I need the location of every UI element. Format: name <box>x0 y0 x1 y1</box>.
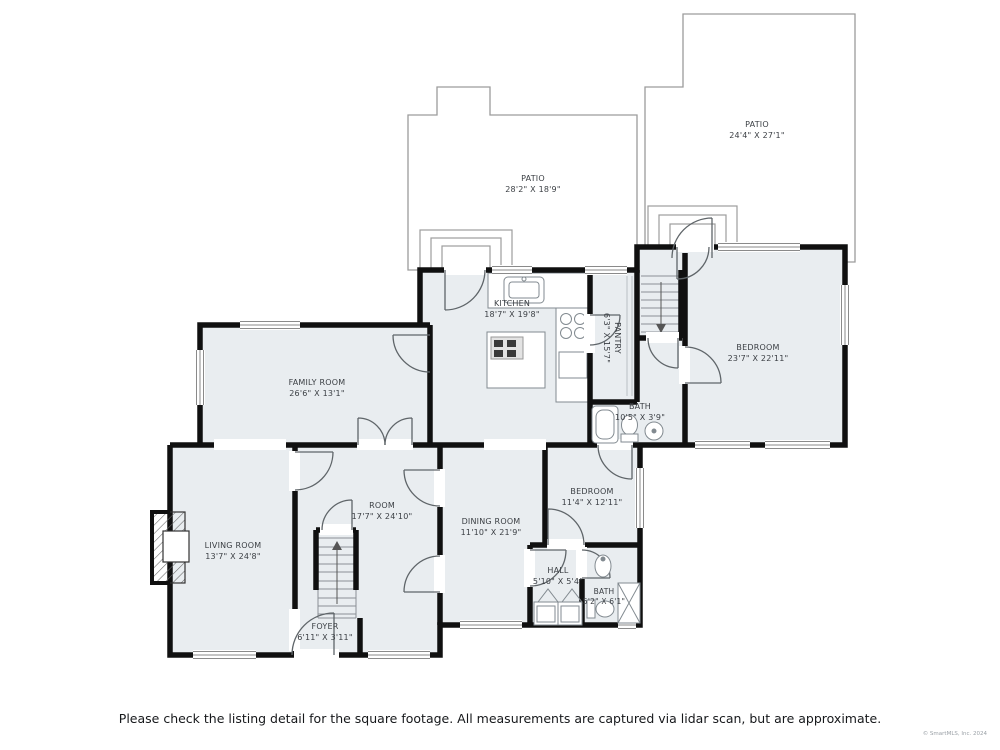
room-label-patio-mid: PATIO 28'2" X 18'9" <box>505 174 560 196</box>
toilet-tank <box>621 434 638 442</box>
room-label-bedroom-second: BEDROOM 11'4" X 12'11" <box>562 487 623 509</box>
floorplan-page: PATIO 24'4" X 27'1" PATIO 28'2" X 18'9" … <box>0 0 1000 750</box>
room-label-kitchen: KITCHEN 18'7" X 19'8" <box>484 299 539 321</box>
room-label-living-room: LIVING ROOM 13'7" X 24'8" <box>205 541 262 563</box>
copyright-text: © SmartMLS, Inc. 2024 <box>923 731 987 737</box>
room-label-dining-room: DINING ROOM 11'10" X 21'9" <box>461 517 522 539</box>
room-label-room: ROOM 17'7" X 24'10" <box>352 501 413 523</box>
room-label-hall: HALL 5'10" X 5'4" <box>533 566 583 588</box>
room-label-family-room: FAMILY ROOM 26'6" X 13'1" <box>289 378 346 400</box>
fireplace <box>152 512 189 583</box>
room-label-bath-lower: BATH 5'2" X 6'1" <box>583 587 625 607</box>
firebox <box>163 531 189 562</box>
room-label-pantry: PANTRY 6'3" X 15'7" <box>600 313 622 363</box>
kitchen-fixtures <box>487 273 590 402</box>
room-label-bath-upper: BATH 10'5" X 3'9" <box>615 402 665 424</box>
sink-faucet <box>522 277 526 281</box>
room-label-foyer: FOYER 6'11" X 3'11" <box>297 622 352 644</box>
disclaimer-text: Please check the listing detail for the … <box>0 711 1000 726</box>
room-label-patio-right: PATIO 24'4" X 27'1" <box>729 120 784 142</box>
room-label-bedroom-main: BEDROOM 23'7" X 22'11" <box>728 343 789 365</box>
floorplan-drawing <box>0 0 1000 750</box>
